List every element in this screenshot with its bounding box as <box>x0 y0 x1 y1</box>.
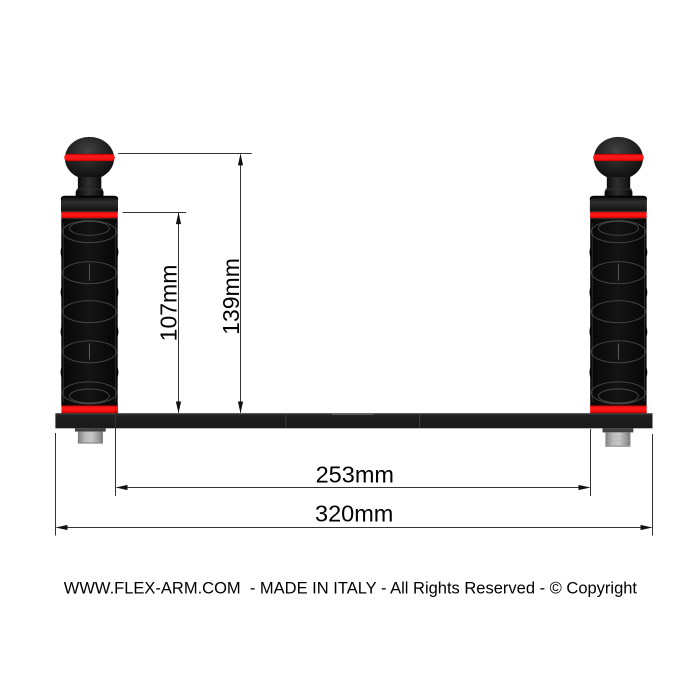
svg-text:107mm: 107mm <box>156 265 182 342</box>
svg-text:320mm: 320mm <box>315 501 393 527</box>
svg-text:139mm: 139mm <box>218 258 244 335</box>
svg-text:WWW.FLEX-ARM.COM - MADE IN IT: WWW.FLEX-ARM.COM - MADE IN ITALY - All R… <box>64 579 638 597</box>
svg-text:253mm: 253mm <box>316 461 394 487</box>
